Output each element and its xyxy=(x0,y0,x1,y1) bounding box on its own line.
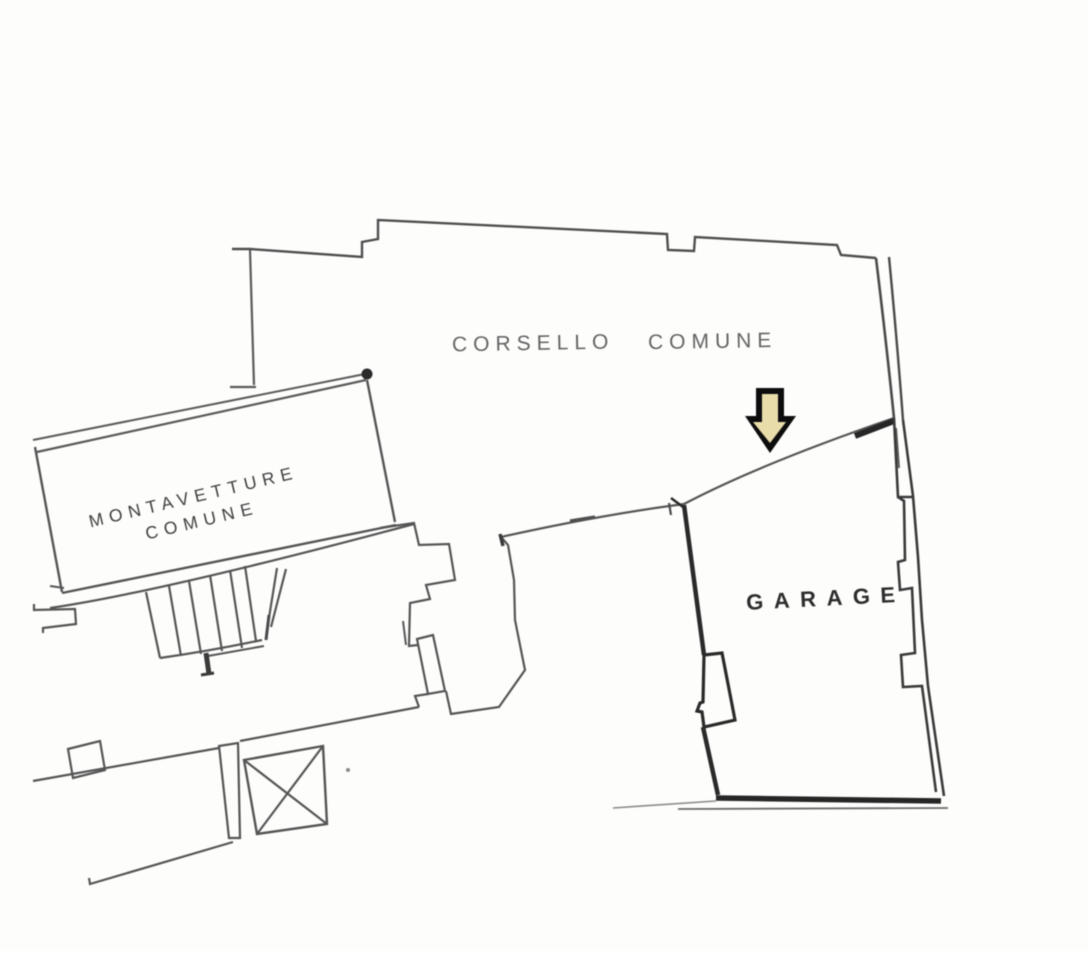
svg-text:COMUNE: COMUNE xyxy=(648,329,778,354)
svg-text:CORSELLO: CORSELLO xyxy=(452,331,615,357)
